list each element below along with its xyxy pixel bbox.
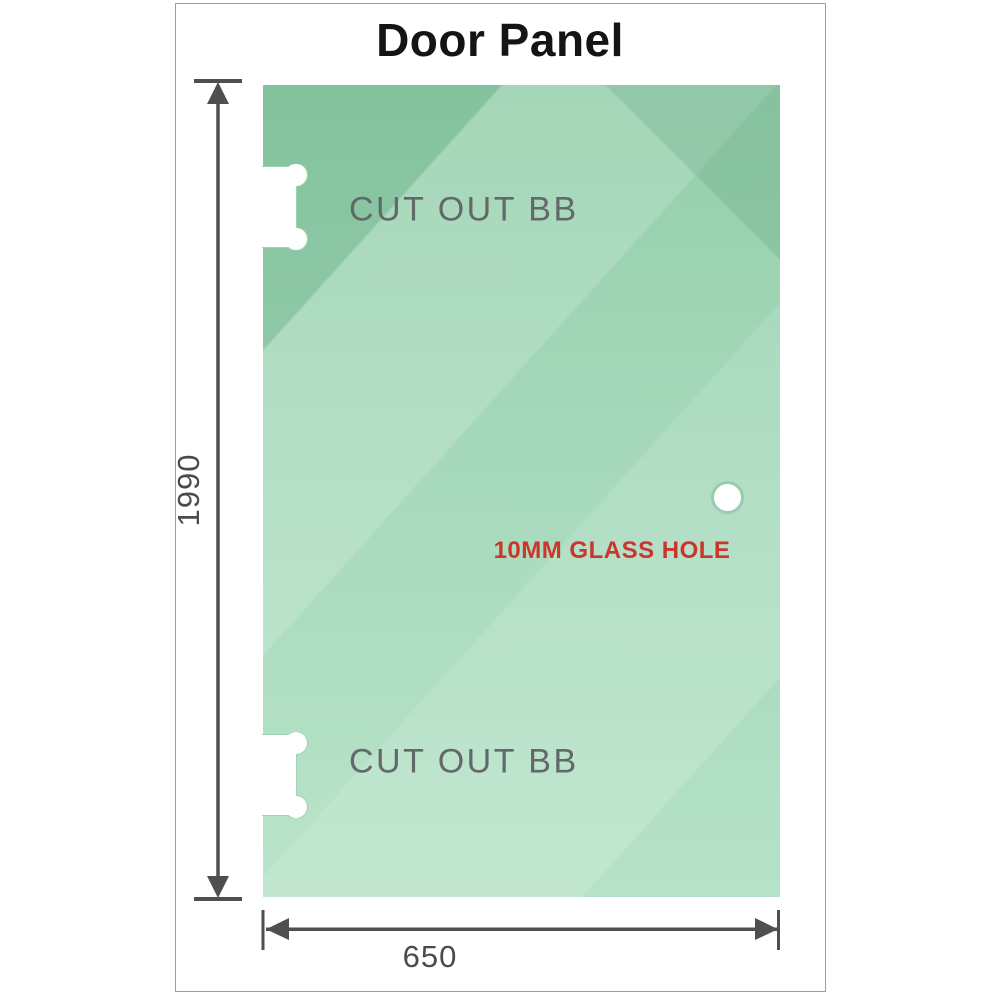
glass-hole-label: 10MM GLASS HOLE (494, 537, 731, 565)
cutout-label-top: CUT OUT BB (349, 191, 579, 230)
cutout-bb-top-icon (262, 164, 310, 250)
height-dimension-label: 1990 (171, 454, 207, 527)
page-title: Door Panel (376, 13, 624, 67)
glass-hole-icon (714, 484, 741, 511)
cutout-label-bottom: CUT OUT BB (349, 743, 579, 782)
width-dimension-arrow-icon (258, 908, 786, 952)
width-dimension-label: 650 (403, 939, 458, 975)
cutout-bb-bottom-icon (262, 732, 310, 818)
door-panel-diagram: Door Panel CUT OUT BB CUT OUT BB 10MM GL… (0, 0, 1000, 1000)
